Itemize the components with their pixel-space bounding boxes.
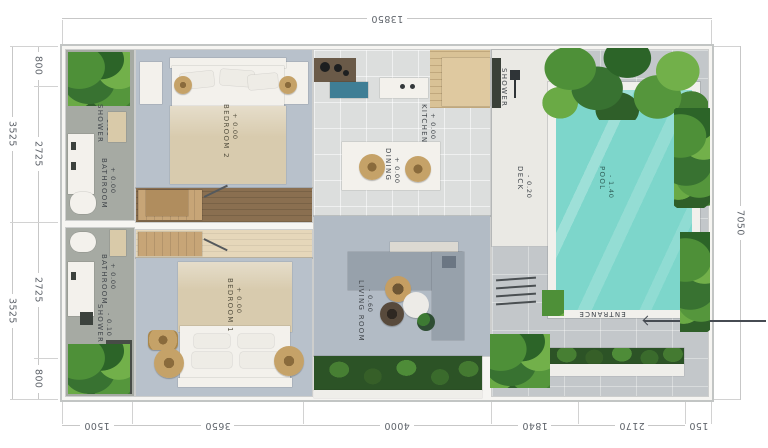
- dim-ext-line: [714, 46, 740, 47]
- dim-line: [12, 46, 13, 117]
- dim-label: 2170: [619, 420, 645, 431]
- dim-label: 4000: [384, 420, 410, 431]
- dim-ext-line: [303, 402, 304, 424]
- dim-label: 800: [33, 56, 44, 75]
- dim-top-13850: 13850: [62, 12, 712, 24]
- wicker-bench: [148, 330, 178, 350]
- shower-head: [80, 312, 93, 325]
- dim-line: [12, 151, 13, 222]
- room-level: - 0.60: [365, 289, 374, 342]
- coffee-table-dark: [380, 302, 404, 326]
- room-name: BATHROOM: [98, 254, 108, 305]
- dim-label: 3650: [205, 420, 231, 431]
- island-fixture: [410, 84, 415, 89]
- tree-canopy-right: [680, 232, 710, 332]
- faucet: [71, 142, 76, 150]
- island-fixture: [400, 84, 405, 89]
- bed-bench: [146, 190, 188, 216]
- dim-line: [648, 425, 685, 426]
- dim-ext-line: [132, 402, 133, 424]
- dim-line: [234, 425, 303, 426]
- dim-label: 3525: [7, 121, 18, 147]
- outdoor-shower-pipe: [514, 80, 516, 98]
- kitchen-sink: [330, 82, 368, 98]
- dim-line: [62, 425, 80, 426]
- cooktop-burner: [334, 64, 342, 72]
- dim-bottom-150: 150: [685, 419, 712, 431]
- room-level: + 0.00: [234, 287, 243, 333]
- dining-chair: [405, 156, 431, 182]
- dim-bottom-1500: 1500: [62, 419, 132, 431]
- dim-label: 2725: [33, 277, 44, 303]
- room-name: BATHROOM: [98, 158, 108, 209]
- dim-line: [38, 222, 39, 273]
- dim-line: [740, 46, 741, 206]
- bath-bench: [110, 230, 126, 256]
- dim-ext-line: [578, 402, 579, 424]
- dim-ext-line: [62, 20, 63, 44]
- room-label-bathroom-bottom: BATHROOM+ 0.00: [98, 254, 117, 305]
- pillow: [194, 334, 230, 348]
- dim-line: [38, 307, 39, 358]
- pool: [556, 90, 692, 310]
- room-name: BEDROOM 1: [224, 278, 234, 333]
- headboard: [178, 378, 292, 387]
- dim-line: [551, 425, 578, 426]
- room-name: LIVING ROOM: [355, 280, 365, 342]
- pillow: [192, 352, 232, 368]
- room-label-bathroom-top: BATHROOM+ 0.00: [98, 158, 117, 209]
- room-label-living: LIVING ROOM- 0.60: [355, 280, 374, 342]
- room-name: SHOWER: [498, 68, 508, 107]
- dim-left-3525-b: 3525: [6, 222, 18, 400]
- entrance-planter-wall: [550, 364, 684, 376]
- entrance-label: ENTRANCE: [576, 310, 628, 318]
- room-name: DECK: [514, 166, 524, 199]
- dim-left-800-a: 800: [32, 46, 44, 86]
- dim-line: [38, 358, 39, 365]
- room-level: - 1.40: [606, 175, 615, 199]
- cooktop-burner: [320, 62, 330, 72]
- dim-label: 2725: [33, 141, 44, 167]
- dim-bottom-3650: 3650: [132, 419, 303, 431]
- dim-line: [12, 222, 13, 294]
- nightstand: [140, 62, 162, 104]
- dim-ext-line: [62, 402, 63, 424]
- dim-line: [38, 86, 39, 137]
- dim-ext-line: [685, 402, 686, 424]
- room-label-deck: DECK- 0.20: [514, 166, 533, 199]
- dim-ext-line: [10, 222, 58, 223]
- dim-left-2725-b: 2725: [32, 222, 44, 358]
- dim-bottom-4000: 4000: [303, 419, 491, 431]
- dim-left-3525-a: 3525: [6, 46, 18, 222]
- room-label-kitchen: KITCHEN+ 0.00: [418, 104, 437, 143]
- room-level: + 0.00: [108, 167, 117, 209]
- room-label-shower-bottom: SHOWER- 0.10: [94, 304, 113, 343]
- toilet-top: [70, 192, 96, 214]
- dim-left-800-b: 800: [32, 358, 44, 400]
- dim-label: 7050: [735, 210, 746, 236]
- sofa-pillow: [442, 256, 456, 268]
- toilet-bottom: [70, 232, 96, 252]
- room-level: + 0.00: [230, 113, 239, 159]
- dim-label: 3525: [7, 298, 18, 324]
- pillow: [247, 73, 278, 91]
- dim-line: [491, 425, 518, 426]
- dim-label: 13850: [371, 13, 403, 24]
- dim-label: 1840: [522, 420, 548, 431]
- room-label-outdoor-shower: SHOWER: [498, 68, 508, 107]
- room-level: + 0.00: [108, 263, 117, 305]
- room-label-bedroom2: BEDROOM 2+ 0.00: [220, 104, 239, 159]
- room-level: - 0.20: [524, 175, 533, 199]
- dim-ext-line: [10, 46, 58, 47]
- room-name: DINING: [382, 148, 392, 184]
- bath-bench: [108, 112, 126, 142]
- dim-ext-line: [34, 358, 58, 359]
- dim-line: [303, 425, 380, 426]
- floor-plan-canvas: 13850 1500 3650 4000 1840 2170 150 3525 …: [0, 0, 768, 448]
- dim-ext-line: [711, 402, 712, 424]
- room-name: POOL: [596, 166, 606, 199]
- room-label-pool: POOL- 1.40: [596, 166, 615, 199]
- potted-plant: [417, 313, 435, 331]
- room-level: - 0.10: [104, 313, 113, 343]
- dim-line: [62, 18, 367, 19]
- hedge-planter: [314, 356, 482, 390]
- kitchen-counter-wood: [442, 58, 490, 106]
- room-level: + 0.00: [392, 157, 401, 184]
- dim-ext-line: [10, 399, 58, 400]
- faucet: [71, 162, 76, 170]
- pillow: [238, 334, 274, 348]
- dim-ext-line: [491, 402, 492, 424]
- dim-line: [578, 425, 615, 426]
- entrance-hedge: [546, 348, 684, 364]
- pendant-lamp: [279, 76, 297, 94]
- dim-line: [38, 171, 39, 222]
- dim-ext-line: [714, 399, 740, 400]
- dim-line: [132, 425, 201, 426]
- plant-cluster: [490, 334, 550, 388]
- plant-cluster: [542, 290, 564, 316]
- tree-canopy-right: [674, 108, 710, 208]
- fur-pouf: [154, 348, 184, 378]
- bathroom-plants: [68, 344, 130, 394]
- dim-left-2725-a: 2725: [32, 86, 44, 222]
- dim-ext-line: [711, 20, 712, 44]
- dim-line: [114, 425, 132, 426]
- wardrobe-cabinet: [138, 232, 202, 256]
- outdoor-shower-head: [510, 70, 520, 80]
- pendant-lamp: [174, 76, 192, 94]
- dim-label: 800: [33, 369, 44, 388]
- room-name: SHOWER: [94, 304, 104, 343]
- room-label-bedroom1: BEDROOM 1+ 0.00: [224, 278, 243, 333]
- room-name: BEDROOM 2: [220, 104, 230, 159]
- room-name: KITCHEN: [418, 104, 428, 143]
- dim-right-7050: 7050: [734, 46, 746, 400]
- dim-label: 1500: [84, 420, 110, 431]
- dim-line: [12, 328, 13, 400]
- dim-bottom-2170: 2170: [578, 419, 685, 431]
- dim-label: 150: [689, 420, 708, 431]
- dim-ext-line: [34, 86, 58, 87]
- faucet: [71, 272, 76, 280]
- bathroom-plants: [68, 52, 130, 106]
- room-label-dining: DINING+ 0.00: [382, 148, 401, 184]
- floor-plan: SHOWER- 0.10 BATHROOM+ 0.00 BATHROOM+ 0.…: [62, 46, 712, 400]
- vanity-bottom: [68, 262, 94, 316]
- dim-bottom-1840: 1840: [491, 419, 578, 431]
- cooktop-burner: [343, 70, 349, 76]
- planter-wall: [314, 390, 482, 398]
- room-level: + 0.00: [428, 113, 437, 143]
- room-name: SHOWER: [94, 104, 104, 143]
- dim-line: [407, 18, 712, 19]
- dim-line: [414, 425, 491, 426]
- wicker-pouf: [274, 346, 304, 376]
